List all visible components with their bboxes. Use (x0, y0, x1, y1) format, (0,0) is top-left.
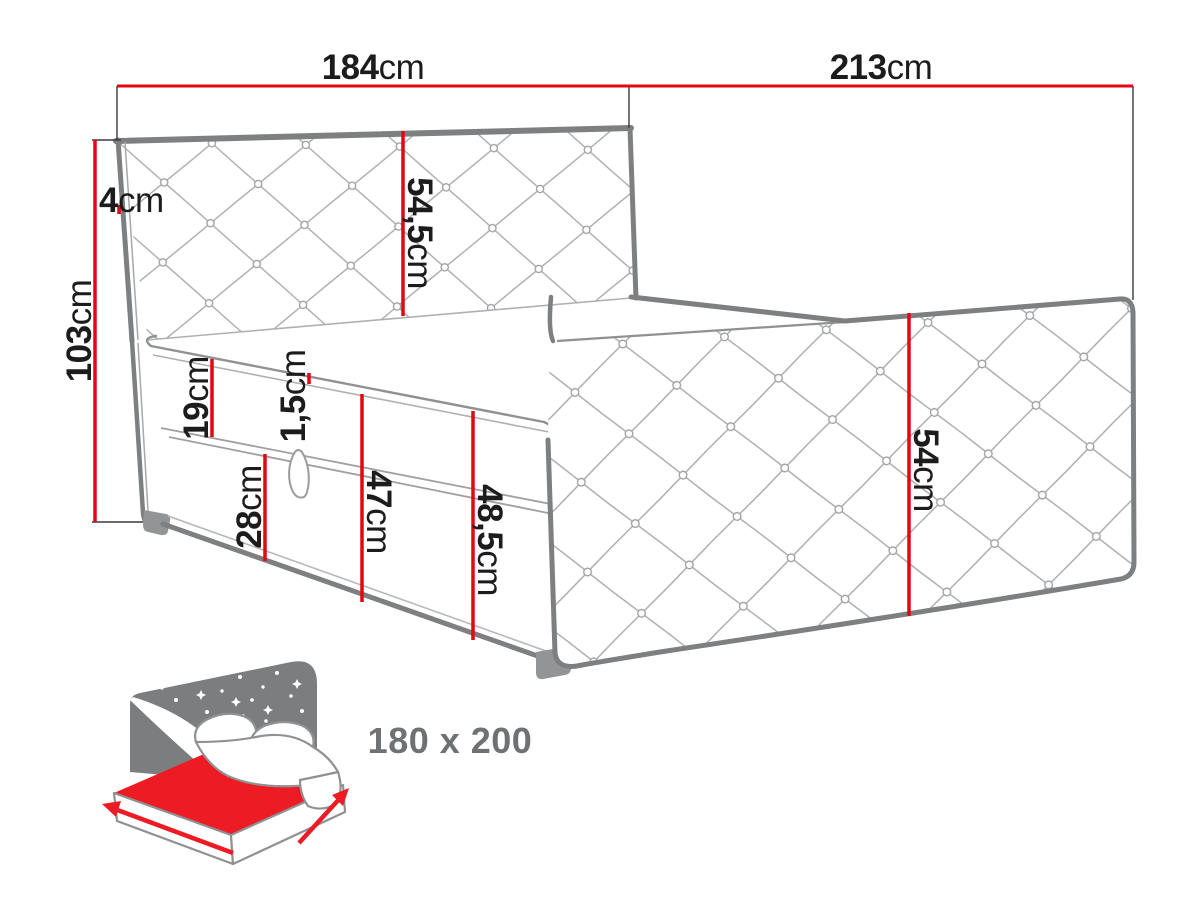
label-base-total-height-unit: cm (470, 550, 509, 596)
label-mattress-height-unit: cm (177, 356, 216, 402)
label-bed-length-value: 213 (830, 48, 887, 87)
bed-size-label: 180 x 200 (368, 720, 533, 761)
label-topper-thickness-value: 1,5 (274, 395, 313, 442)
label-base-total-height-value: 48,5 (470, 484, 509, 550)
label-mattress-height-value: 19 (177, 402, 216, 440)
label-bed-length-unit: cm (887, 48, 933, 87)
side-panel-corner-post (550, 297, 553, 341)
headboard-leg-strip-outer (132, 341, 152, 527)
label-base-height: 47cm (359, 470, 398, 554)
label-storage-height: 28cm (230, 465, 269, 549)
label-headboard-panel-height-unit: cm (400, 243, 439, 289)
label-base-height-unit: cm (359, 508, 398, 554)
label-headboard-panel-height-value: 54,5 (400, 177, 439, 243)
side-panel-tufting (548, 299, 1134, 667)
label-mattress-height: 19cm (177, 356, 216, 440)
label-storage-height-value: 28 (230, 511, 269, 549)
bed-dimension-diagram: 184cm 213cm 4cm 103cm 54,5cm 19cm 1,5cm … (0, 0, 1200, 899)
label-side-panel-height-value: 54 (906, 428, 945, 467)
label-headboard-thickness-value: 4 (99, 181, 119, 220)
label-base-height-value: 47 (359, 470, 398, 508)
label-headboard-width: 184cm (322, 48, 425, 87)
diagram-page: 184cm 213cm 4cm 103cm 54,5cm 19cm 1,5cm … (0, 0, 1200, 899)
label-bed-length: 213cm (830, 48, 933, 87)
label-headboard-panel-height: 54,5cm (400, 177, 439, 289)
label-storage-height-unit: cm (230, 465, 269, 511)
label-headboard-width-value: 184 (322, 48, 380, 87)
label-topper-thickness-unit: cm (274, 350, 313, 396)
side-panel-drawing (548, 297, 1134, 666)
bed-size-icon (102, 661, 349, 864)
label-headboard-width-unit: cm (379, 48, 425, 87)
label-side-panel-height: 54cm (906, 428, 945, 512)
headboard-tufting (120, 129, 635, 340)
label-side-panel-height-unit: cm (906, 466, 945, 512)
label-base-total-height: 48,5cm (470, 484, 509, 596)
label-headboard-height-unit: cm (60, 280, 99, 326)
label-headboard-height: 103cm (60, 280, 99, 383)
label-topper-thickness: 1,5cm (274, 350, 313, 443)
label-headboard-thickness: 4cm (99, 181, 164, 220)
label-headboard-thickness-unit: cm (118, 181, 164, 220)
label-headboard-height-value: 103 (60, 325, 99, 382)
